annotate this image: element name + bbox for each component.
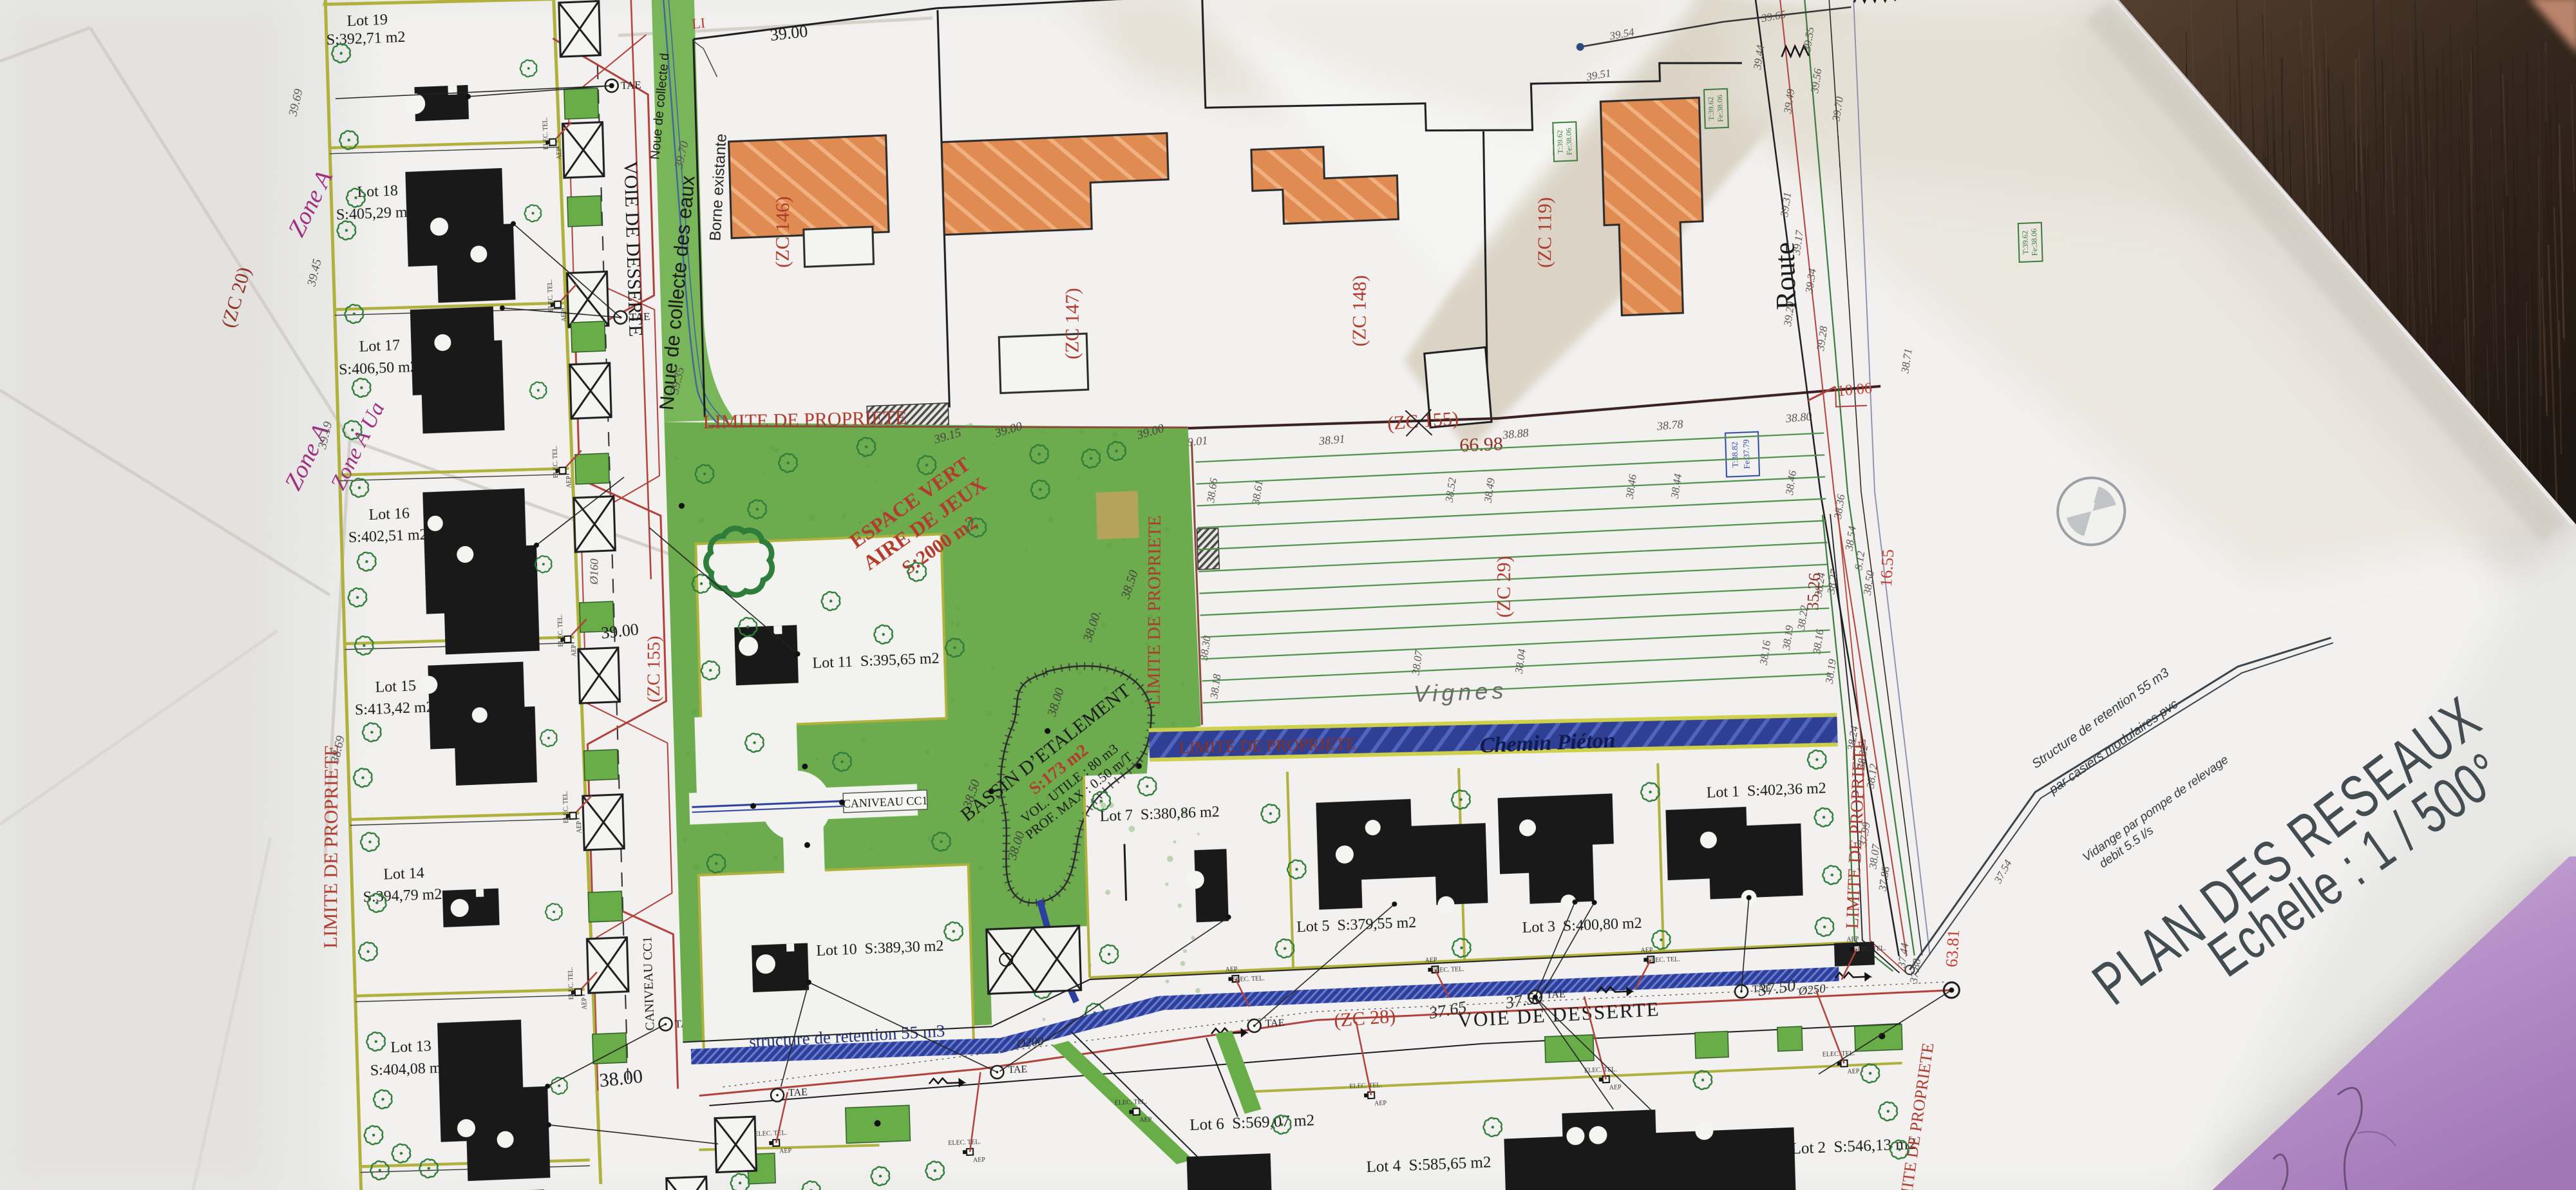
svg-text:Lot 19: Lot 19 xyxy=(346,12,388,30)
svg-text:ELEC. TEL.: ELEC. TEL. xyxy=(1853,945,1886,954)
svg-text:TAE: TAE xyxy=(621,79,641,91)
svg-text:ELEC. TEL.: ELEC. TEL. xyxy=(1115,1099,1148,1107)
svg-text:38.80: 38.80 xyxy=(1785,410,1812,425)
svg-text:S:406,50 m2: S:406,50 m2 xyxy=(339,359,418,379)
svg-text:38.91: 38.91 xyxy=(1318,432,1345,448)
svg-text:TAE: TAE xyxy=(1546,989,1566,1001)
svg-text:ELEC. TEL.: ELEC. TEL. xyxy=(754,1129,787,1138)
svg-text:AEP: AEP xyxy=(571,644,578,657)
svg-text:LIMITE DE PROPRIETE: LIMITE DE PROPRIETE xyxy=(320,744,343,949)
svg-text:AEP: AEP xyxy=(1225,966,1238,974)
svg-text:Lot 17: Lot 17 xyxy=(359,337,400,356)
svg-text:ELEC. TEL.: ELEC. TEL. xyxy=(1584,1066,1617,1075)
svg-text:T:39.62: T:39.62 xyxy=(1555,130,1565,155)
svg-text:(ZC 147): (ZC 147) xyxy=(1061,288,1083,359)
svg-text:ELEC. TEL.: ELEC. TEL. xyxy=(556,614,565,647)
svg-text:63.81: 63.81 xyxy=(1942,929,1963,968)
svg-text:ELEC. TEL.: ELEC. TEL. xyxy=(567,967,576,1000)
svg-text:Fe:37.79: Fe:37.79 xyxy=(1741,439,1751,469)
svg-text:ELEC. TEL.: ELEC. TEL. xyxy=(542,117,550,150)
svg-text:AEP: AEP xyxy=(779,1147,792,1155)
svg-text:ELEC. TEL.: ELEC. TEL. xyxy=(1349,1082,1382,1090)
svg-text:LIMITE DE PROPRIETE: LIMITE DE PROPRIETE xyxy=(1144,515,1164,706)
svg-text:AEP: AEP xyxy=(1640,947,1653,954)
svg-text:S:404,08 m2: S:404,08 m2 xyxy=(370,1059,449,1079)
svg-text:AEP: AEP xyxy=(581,997,589,1010)
svg-text:38.78: 38.78 xyxy=(1656,417,1683,433)
svg-text:(ZC 148): (ZC 148) xyxy=(1349,275,1370,346)
svg-text:TAE: TAE xyxy=(1008,1064,1027,1075)
svg-text:S:392,71 m2: S:392,71 m2 xyxy=(326,29,405,49)
svg-text:ELEC. TEL.: ELEC. TEL. xyxy=(551,446,560,478)
svg-text:LIMITE DE PROPRIETE: LIMITE DE PROPRIETE xyxy=(1179,735,1356,757)
svg-text:TAE: TAE xyxy=(788,1087,808,1099)
svg-text:Lot 15: Lot 15 xyxy=(375,677,416,696)
svg-text:ELEC. TEL.: ELEC. TEL. xyxy=(948,1138,981,1147)
svg-text:LI: LI xyxy=(691,15,706,32)
svg-text:T:39.62: T:39.62 xyxy=(2020,231,2030,255)
svg-text:AEP: AEP xyxy=(576,820,583,833)
svg-text:ELEC. TEL.: ELEC. TEL. xyxy=(1647,956,1680,964)
svg-text:66.98: 66.98 xyxy=(1459,433,1503,456)
svg-text:(ZC 155): (ZC 155) xyxy=(644,636,665,703)
svg-text:Ø160: Ø160 xyxy=(587,559,601,585)
svg-text:AEP: AEP xyxy=(556,147,563,160)
svg-text:T:39.62: T:39.62 xyxy=(1706,97,1716,121)
svg-text:S:405,29 m2: S:405,29 m2 xyxy=(336,203,415,223)
svg-text:(ZC 29): (ZC 29) xyxy=(1493,556,1515,618)
svg-text:AEP: AEP xyxy=(1609,1084,1622,1091)
svg-text:Lot 16: Lot 16 xyxy=(368,505,410,524)
svg-text:AEP: AEP xyxy=(1139,1116,1152,1124)
svg-text:38.88: 38.88 xyxy=(1501,426,1529,442)
svg-text:(ZC 146): (ZC 146) xyxy=(772,196,794,268)
svg-text:Vignes: Vignes xyxy=(1413,677,1508,708)
svg-text:Lot 14: Lot 14 xyxy=(383,865,424,883)
svg-text:T:38.82: T:38.82 xyxy=(1729,442,1739,468)
svg-text:Fe:38.06: Fe:38.06 xyxy=(2029,229,2039,256)
svg-text:CANIVEAU CC1: CANIVEAU CC1 xyxy=(640,936,657,1031)
svg-text:AEP: AEP xyxy=(1846,936,1859,943)
svg-text:AEP: AEP xyxy=(565,475,573,488)
svg-text:AEP: AEP xyxy=(1374,1100,1387,1108)
svg-text:ELEC. TEL.: ELEC. TEL. xyxy=(562,791,570,824)
svg-text:35.26: 35.26 xyxy=(1803,572,1824,611)
svg-text:Fe:38.06: Fe:38.06 xyxy=(1564,127,1574,155)
svg-text:S:413,42 m2: S:413,42 m2 xyxy=(355,699,434,719)
svg-text:AEP: AEP xyxy=(560,309,568,322)
svg-text:AEP: AEP xyxy=(1847,1068,1860,1075)
svg-text:AEP: AEP xyxy=(1425,956,1437,964)
svg-text:16.55: 16.55 xyxy=(1877,549,1897,587)
svg-text:ELEC. TEL.: ELEC. TEL. xyxy=(547,279,555,312)
svg-text:S:402,51 m2: S:402,51 m2 xyxy=(348,526,428,546)
svg-text:(ZC 119): (ZC 119) xyxy=(1534,197,1556,268)
svg-text:TAE: TAE xyxy=(1265,1017,1284,1029)
svg-text:Lot 13: Lot 13 xyxy=(390,1038,431,1057)
svg-text:S:394,79 m2: S:394,79 m2 xyxy=(363,886,442,906)
svg-text:10.06: 10.06 xyxy=(1837,380,1873,400)
svg-text:AEP: AEP xyxy=(973,1157,986,1164)
svg-text:Fe:38.06: Fe:38.06 xyxy=(1715,95,1725,122)
